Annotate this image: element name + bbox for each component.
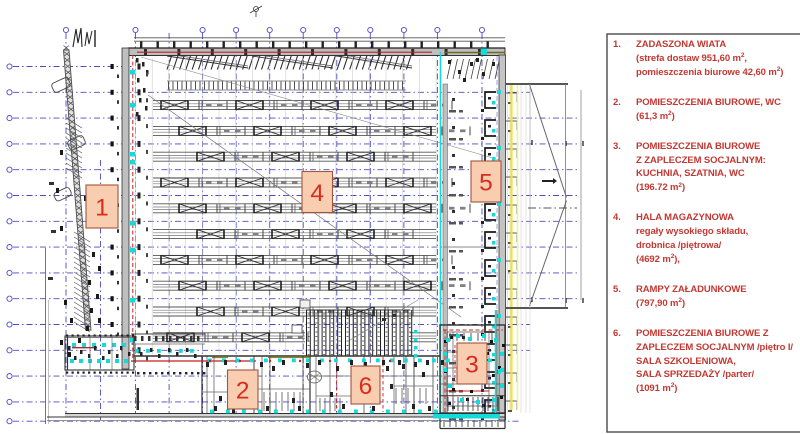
svg-text:6: 6 <box>359 373 373 400</box>
svg-text:1: 1 <box>95 194 109 221</box>
svg-text:4: 4 <box>310 180 324 207</box>
svg-text:2: 2 <box>236 377 250 404</box>
svg-text:3: 3 <box>465 351 479 378</box>
svg-text:5: 5 <box>479 169 493 196</box>
